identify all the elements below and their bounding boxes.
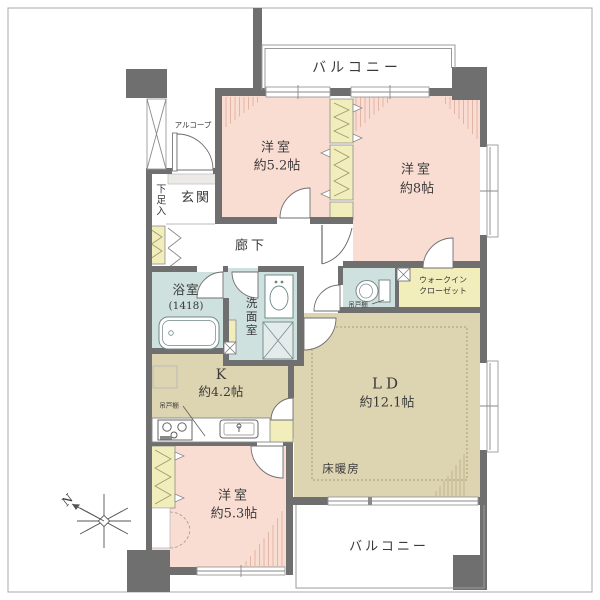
kitchen-stove: [158, 420, 192, 440]
entrance-door-leaf: [173, 133, 178, 171]
bedroom-53-size: 約5.3帖: [211, 508, 258, 523]
bedroom-53-lower-storage: [151, 508, 170, 548]
corridor-label: 廊下: [235, 240, 267, 255]
shoe-storage-label: 下足入: [153, 184, 165, 217]
entrance-label: 玄関: [181, 192, 211, 207]
bedroom-8-name: 洋室: [401, 164, 433, 179]
toilet-hanging-cupboard-label: 吊戸棚: [348, 301, 368, 308]
closet-between-rooms-top: [330, 99, 353, 143]
bedroom-8-door-swing: [322, 228, 352, 264]
bedroom-52-size: 約5.2帖: [254, 160, 301, 175]
wic-label-line2: クローゼット: [419, 286, 467, 295]
bathroom-size: (1418): [169, 300, 204, 312]
kitchen-hanging-cupboard-label: 吊戸棚: [159, 402, 179, 409]
pipe-space-box: [397, 268, 410, 281]
bedroom-52-floor: [222, 96, 330, 218]
balcony-top-label: バルコニー: [312, 60, 402, 76]
bathtub: [159, 317, 219, 349]
alcove-label: アルコープ: [175, 122, 212, 131]
kitchen-name: K: [216, 367, 226, 383]
floor-plan: N バルコニー バルコニー 洋室 約5.2帖 洋室 約8帖 洋室 約5.3帖 L…: [0, 0, 600, 600]
bedroom-8-size: 約8帖: [400, 183, 434, 198]
compass: N: [58, 491, 131, 548]
compass-arrowhead: [72, 504, 80, 510]
bedroom-52-name: 洋室: [261, 142, 293, 157]
wash-basin: [265, 275, 293, 318]
small-shaft-box: [224, 342, 236, 354]
ld-bay-window: [487, 361, 498, 452]
bedroom-53-name: 洋室: [218, 490, 250, 505]
floor-plan-drawing: N: [0, 0, 600, 600]
washing-machine-pan: [263, 322, 293, 359]
bedroom-8-floor: [353, 96, 480, 261]
kitchen-size: 約4.2帖: [199, 385, 244, 399]
entrance-tile: [168, 174, 217, 184]
ld-bay-window-gap: [480, 363, 487, 450]
bathroom-name: 浴室: [172, 283, 199, 297]
floor-heating-label: 床暖房: [322, 462, 360, 475]
shoe-cabinet-accordion-door: [168, 228, 181, 268]
wic-label-line1: ウォークイン: [419, 275, 467, 284]
toilet-door: [314, 285, 340, 311]
ld-size: 約12.1帖: [360, 397, 415, 412]
washroom-label: 洗面室: [244, 297, 257, 338]
ld-name: LD: [372, 375, 402, 392]
entrance-door-swing: [177, 134, 213, 170]
kitchen-sink: [220, 420, 258, 438]
balcony-bottom-label: バルコニー: [349, 541, 429, 556]
